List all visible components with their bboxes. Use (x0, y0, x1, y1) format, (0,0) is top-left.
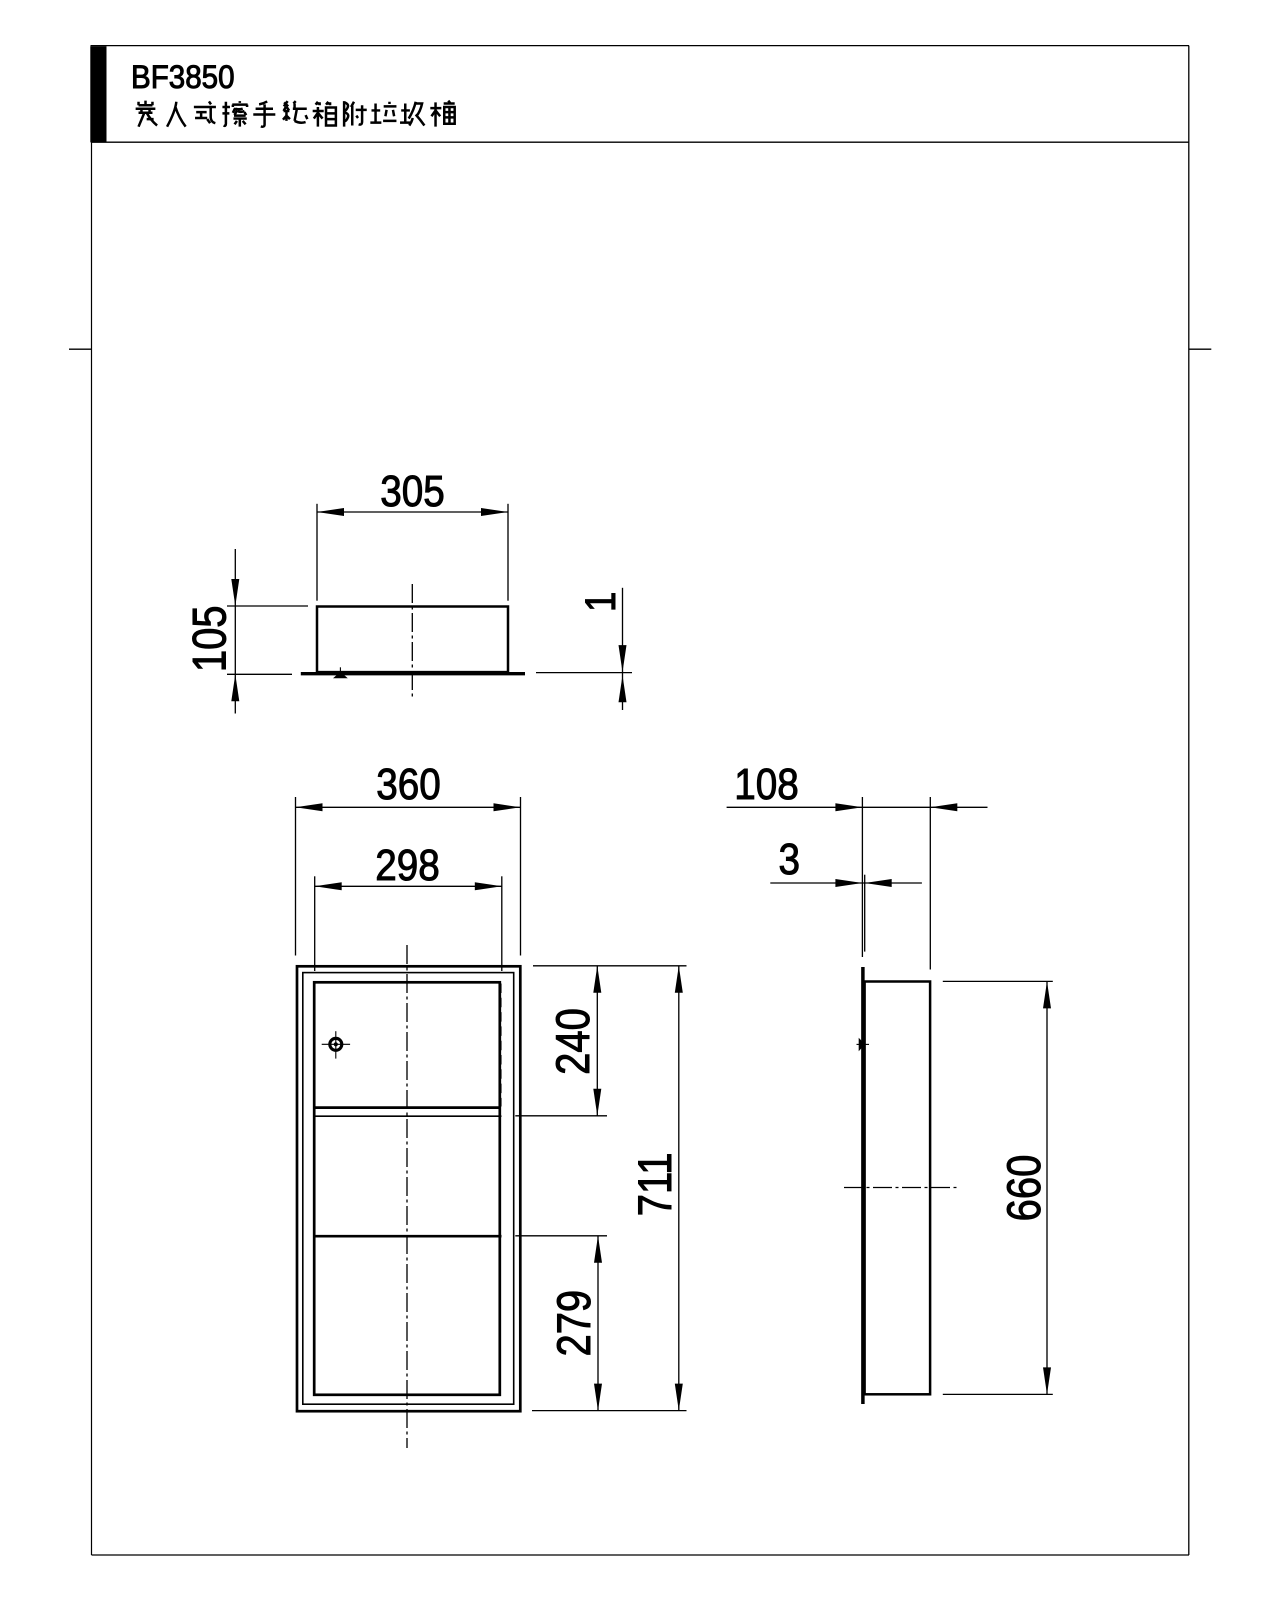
svg-text:240: 240 (548, 1008, 600, 1075)
svg-text:1: 1 (577, 592, 624, 612)
svg-text:360: 360 (376, 759, 441, 809)
svg-text:BF3850: BF3850 (131, 59, 235, 96)
svg-text:298: 298 (375, 839, 440, 889)
svg-text:660: 660 (999, 1155, 1051, 1222)
svg-text:108: 108 (734, 759, 799, 809)
svg-text:279: 279 (549, 1290, 601, 1357)
svg-text:711: 711 (630, 1153, 682, 1217)
svg-text:105: 105 (184, 605, 236, 672)
svg-text:305: 305 (380, 466, 445, 516)
svg-text:3: 3 (779, 834, 801, 884)
